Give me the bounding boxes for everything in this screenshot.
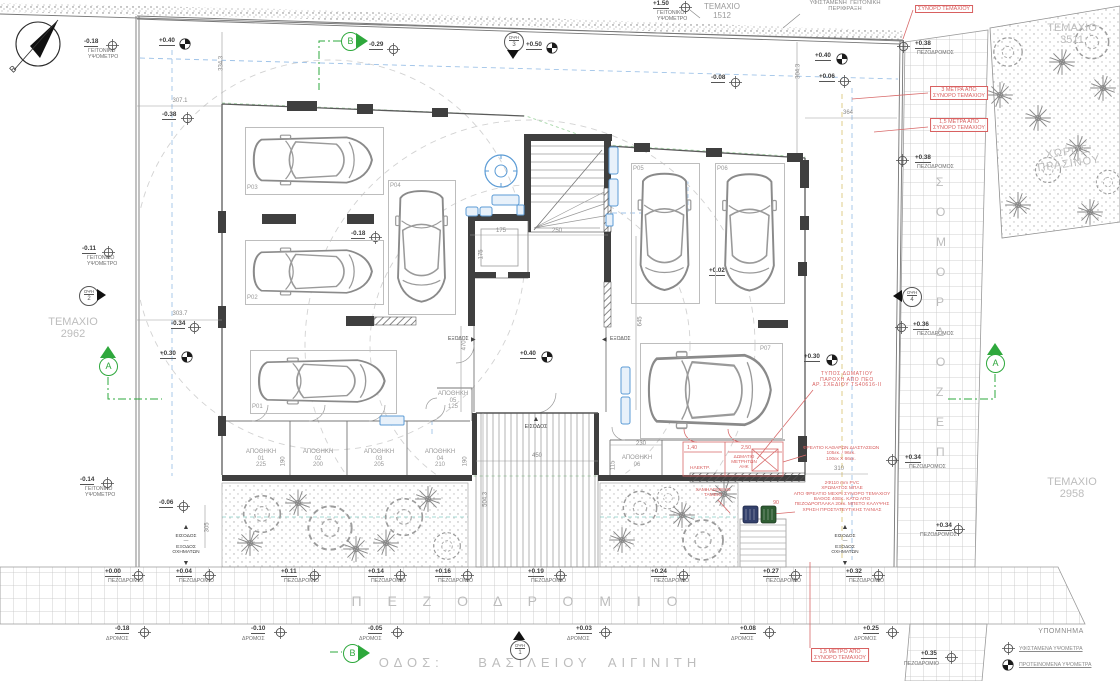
elevation-marker-existing: +0.36: [913, 322, 929, 330]
car-icon: [394, 187, 448, 306]
exit-label-right: ΕΞΟΔΟΣ: [610, 337, 631, 343]
room-label-apothiki-01: ΑΠΟΘΗΚΗ 01 225: [246, 449, 276, 469]
sidewalk-watermark: Π Ε Ζ Ο Δ Ρ Ο Μ Ι Ο: [351, 594, 688, 610]
elevation-marker-existing-sublabel: ΔΡΟΜΟΣ: [242, 637, 265, 643]
elevation-marker-existing-sublabel: ΠΕΖΟΔΡΟΜΙΟ: [531, 579, 566, 585]
dimension-label: 190: [281, 456, 288, 466]
elevation-marker-existing: -0.06: [159, 500, 173, 508]
view-marker-arrow-icon: [893, 290, 902, 302]
elevation-marker-existing: -0.18: [115, 626, 129, 634]
view-marker-number: 1: [515, 648, 524, 656]
elevation-marker-existing-sublabel: ΔΡΟΜΟΣ: [567, 637, 590, 643]
elevation-marker-existing-sublabel: ΠΕΖΟΔΡΟΜΟΣ: [909, 465, 946, 471]
car-icon: [255, 357, 390, 405]
room-label-apothiki-03: ΑΠΟΘΗΚΗ 03 205: [364, 449, 394, 469]
dimension-label: 364: [843, 110, 853, 117]
elevation-marker-existing-sublabel: ΠΕΖΟΔΡΟΜΙΟ: [904, 662, 939, 668]
elevation-marker-existing-sublabel: ΓΕΙΤΟΝΙΚΟ ΥΨΟΜΕΤΡΟ: [88, 49, 118, 61]
arrow-up-icon: ▲: [183, 524, 190, 532]
section-marker-a: A: [986, 354, 1005, 373]
elevation-marker-existing-icon: [838, 75, 851, 88]
sidewalk-strip-letter: Δ: [936, 326, 944, 339]
view-marker-1: ΟΨΗ1: [510, 640, 530, 660]
red-dimension-label: 90: [773, 501, 779, 507]
dimension-label: 450: [532, 453, 542, 460]
generated-annotations: B307.1334.3304.3364303.71752501756454705…: [0, 0, 1120, 681]
elevation-marker-proposed: +0.40: [520, 351, 536, 359]
view-marker-arrow-icon: [513, 631, 525, 640]
view-marker-4: ΟΨΗ4: [902, 287, 922, 307]
sidewalk-strip-letter: Ρ: [936, 296, 944, 309]
section-marker-arrow-icon: [100, 346, 116, 358]
parcel-label-2958: ΤΕΜΑΧΙΟ 2958: [1047, 476, 1097, 501]
elevation-marker-existing: +0.38: [915, 155, 931, 163]
vehicle-entry-exit-left: ΕΙΣΟΔΟΣ — ΕΞΟΔΟΣ ΟΧΗΜΑΤΩΝ: [172, 534, 199, 555]
entrance-arrow-icon: ▲: [533, 416, 540, 424]
elevation-marker-existing: -0.11: [82, 246, 96, 254]
elevation-marker-existing: +0.08: [740, 626, 756, 634]
elevation-marker-existing: -0.08: [711, 75, 725, 83]
sidewalk-strip-letter: Ο: [936, 206, 945, 219]
elevation-marker-existing-sublabel: ΠΕΖΟΔΡΟΜΙΟ: [438, 579, 473, 585]
car-icon: [637, 170, 692, 295]
view-marker-3: ΟΨΗ3: [504, 32, 524, 52]
red-note-pvc-duct: 2Φ110 mm PVC ΧΡΩΜΑΤΟΣ ΜΠΛΕ ΑΠΟ ΦΡΕΑΤΙΟ Μ…: [794, 481, 891, 513]
dimension-label: 230: [636, 441, 646, 448]
elevation-marker-existing-sublabel: ΓΕΙΤΟΝΙΚΟ ΥΨΟΜΕΤΡΟ: [85, 487, 115, 499]
elevation-marker-existing: -0.38: [162, 112, 176, 120]
section-marker-arrow-icon: [358, 645, 370, 661]
elevation-marker-proposed-icon: [826, 353, 839, 366]
elevation-marker-existing: -0.34: [171, 321, 185, 329]
elevation-marker-existing-icon: [895, 321, 908, 334]
dimension-label: 305: [205, 522, 212, 532]
dimension-label: 645: [638, 316, 645, 326]
room-label-apothiki-04: ΑΠΟΘΗΚΗ 04 210: [425, 449, 455, 469]
elevation-marker-existing-icon: [729, 76, 742, 89]
street-name: ΟΔΟΣ: ΒΑΣΙΛΕΙΟΥ ΑΙΓΙΝΙΤΗ: [379, 656, 701, 671]
room-label-apothiki-02: ΑΠΟΘΗΚΗ 02 200: [303, 449, 333, 469]
elevation-marker-existing-icon: [188, 321, 201, 334]
elevation-marker-existing-sublabel: ΔΡΟΜΟΣ: [854, 637, 877, 643]
red-note-1-5m-bottom: 1,5 ΜΕΤΡΟ ΑΠΟ ΣΥΝΟΡΟ ΤΕΜΑΧΙΟΥ: [811, 648, 869, 662]
compass-north-label: B: [7, 63, 18, 74]
elevation-marker-existing: -0.14: [80, 477, 94, 485]
sidewalk-strip-letter: Σ: [936, 176, 943, 189]
red-note-boundary: ΣΥΝΟΡΟ ΤΕΜΑΧΙΟΥ: [915, 5, 973, 13]
elevation-marker-existing: +0.06: [819, 74, 835, 82]
elevation-marker-existing: +0.03: [576, 626, 592, 634]
arrow-down-icon: ▼: [842, 560, 849, 568]
elevation-marker-existing-icon: [274, 626, 287, 639]
elevation-marker-existing: +0.19: [528, 569, 544, 577]
elevation-marker-existing: -0.18: [351, 231, 365, 239]
elevation-marker-proposed: +0.40: [159, 38, 175, 46]
view-marker-2: ΟΨΗ2: [79, 286, 99, 306]
view-marker-arrow-icon: [97, 289, 106, 301]
dimension-label: 304.3: [796, 64, 803, 79]
elevation-marker-proposed: +0.30: [160, 351, 176, 359]
elevation-marker-existing-icon: [387, 43, 400, 56]
elevation-marker-existing: +0.38: [915, 41, 931, 49]
elevation-marker-existing-icon: [886, 454, 899, 467]
elevation-marker-existing-sublabel: ΓΕΙΤΟΝΙΚΟ ΥΨΟΜΕΤΡΟ: [657, 11, 687, 23]
dimension-label: 303.7: [172, 311, 187, 318]
elevation-marker-existing: +0.16: [435, 569, 451, 577]
car-icon: [645, 350, 776, 430]
elevation-marker-existing: +0.00: [105, 569, 121, 577]
elevation-marker-existing: +0.34: [905, 455, 921, 463]
elevation-marker-existing: +0.24: [651, 569, 667, 577]
elevation-marker-existing: +0.25: [863, 626, 879, 634]
elevation-marker-existing-icon: [896, 154, 909, 167]
elevation-marker-proposed-icon: [181, 350, 194, 363]
red-note-room-type: ΤΥΠΟΣ ΔΩΜΑΤΙΟΥ ΠΑΡΟΧΗ ΑΠΟ ΠΕΟ ΑΡ. ΣΧΕΔΙΟ…: [812, 372, 882, 389]
elevation-marker-existing: -0.05: [368, 626, 382, 634]
arrow-down-icon: ▼: [183, 560, 190, 568]
elevation-marker-existing: -0.18: [84, 39, 98, 47]
elevation-marker-existing-icon: [138, 626, 151, 639]
elevation-marker-existing-sublabel: ΔΡΟΜΟΣ: [731, 637, 754, 643]
elevation-marker-proposed-icon: [546, 41, 559, 54]
elevation-marker-existing: +1.50: [653, 1, 669, 9]
vehicle-entry-exit-right: ΕΙΣΟΔΟΣ — ΕΞΟΔΟΣ ΟΧΗΜΑΤΩΝ: [831, 534, 858, 555]
room-label-ahk-meters: ΔΩΜΑΤΙΟ ΜΕΤΡΗΤΩΝ ΑΗΚ: [731, 454, 757, 469]
elevation-marker-proposed: +0.30: [804, 354, 820, 362]
room-label-apothiki-06: ΑΠΟΘΗΚΗ 06: [622, 455, 652, 468]
sidewalk-strip-letter: Ο: [936, 356, 945, 369]
red-note-1-5m-setback: 1,5 ΜΕΤΡΑ ΑΠΟ ΣΥΝΟΡΟ ΤΕΜΑΧΙΟΥ: [930, 118, 988, 132]
elevation-marker-proposed-icon: [836, 52, 849, 65]
view-marker-number: 2: [84, 294, 93, 302]
sidewalk-strip-letter: Ο: [936, 266, 945, 279]
sidewalk-strip-letter: Π: [936, 446, 945, 459]
elevation-marker-existing: +0.04: [176, 569, 192, 577]
section-marker-a: A: [99, 357, 118, 376]
parcel-label-3511: ΤΕΜΑΧΙΟ 3511: [1047, 22, 1097, 47]
dimension-label: 175: [496, 228, 506, 235]
elevation-marker-existing-icon: [391, 626, 404, 639]
elevation-marker-existing: -0.10: [251, 626, 265, 634]
red-note-lowered-curb: ΧΑΜΗΛΩΜΕΝΟ ΤΑΜΕΙΟ: [695, 488, 730, 499]
elevation-marker-existing-sublabel: ΠΕΖΟΔΡΟΜΟΣ: [917, 51, 954, 57]
sidewalk-strip-letter: Ε: [936, 416, 944, 429]
dimension-label: 307.1: [172, 98, 187, 105]
car-icon: [721, 170, 777, 295]
elevation-marker-proposed: +0.40: [815, 53, 831, 61]
elevation-marker-existing-sublabel: ΠΕΖΟΔΡΟΜΟΣ: [917, 165, 954, 171]
parcel-label-1512: ΤΕΜΑΧΙΟ 1512: [704, 3, 740, 21]
entrance-label: ΕΙΣΟΔΟΣ: [525, 425, 548, 431]
elevation-marker-existing: +0.32: [846, 569, 862, 577]
elevation-marker-proposed-icon: [179, 37, 192, 50]
elevation-marker-proposed-icon: [541, 350, 554, 363]
elevation-marker-existing-sublabel: ΔΡΟΜΟΣ: [106, 637, 129, 643]
view-marker-number: 3: [509, 40, 518, 48]
elevation-marker-existing-icon: [763, 626, 776, 639]
arrow-left-icon: ◀: [602, 337, 607, 344]
elevation-marker-existing-sublabel: ΔΡΟΜΟΣ: [359, 637, 382, 643]
elevation-marker-existing-sublabel: ΠΕΖΟΔΡΟΜΟΣ: [920, 533, 957, 539]
elevation-marker-existing: +0.14: [368, 569, 384, 577]
arrow-up-icon: ▲: [842, 524, 849, 532]
elevation-marker-existing-icon: [897, 40, 910, 53]
sidewalk-strip-letter: Ζ: [936, 386, 943, 399]
car-icon: [250, 247, 377, 296]
room-label-electrical: ΗΛΕΚΤΡ.: [690, 466, 710, 471]
arrow-right-icon: ▶: [471, 337, 476, 344]
existing-fence-label: ΥΦΙΣΤΑΜΕΝΗ ΓΕΙΤΟΝΙΚΗ ΠΕΡΙΦΡΑΞΗ: [809, 0, 880, 13]
elevation-marker-existing-icon: [945, 651, 958, 664]
elevation-marker-existing-sublabel: ΠΕΖΟΔΡΟΜΙΟ: [284, 579, 319, 585]
elevation-marker-existing-sublabel: ΠΕΖΟΔΡΟΜΙΟ: [849, 579, 884, 585]
red-dimension-label: 1,40: [687, 446, 697, 452]
dimension-label: 115: [611, 461, 618, 471]
parcel-label-2962: ΤΕΜΑΧΙΟ 2962: [48, 316, 98, 341]
elevation-marker-existing-sublabel: ΓΕΙΤΟΝΙΚΟ ΥΨΟΜΕΤΡΟ: [87, 256, 117, 268]
exit-label-left: ΕΞΟΔΟΣ: [448, 337, 469, 343]
sidewalk-strip-letter: Μ: [936, 236, 946, 249]
green-space-label: ΧΩΡΟΣ ΠΡΑΣΙΝΟΥ: [1035, 142, 1101, 175]
view-marker-arrow-icon: [507, 50, 519, 59]
elevation-marker-existing-icon: [181, 112, 194, 125]
view-marker-number: 4: [907, 295, 916, 303]
dimension-label: 175: [479, 249, 486, 259]
dimension-label: 250: [552, 228, 562, 235]
elevation-marker-existing: +0.34: [936, 523, 952, 531]
red-note-3m-setback: 3 ΜΕΤΡΑ ΑΠΟ ΣΥΝΟΡΟ ΤΕΜΑΧΙΟΥ: [930, 86, 988, 100]
dimension-label: 504.3: [483, 492, 490, 507]
elevation-marker-existing-sublabel: ΠΕΖΟΔΡΟΜΙΟ: [179, 579, 214, 585]
room-label-apothiki-05: ΑΠΟΘΗΚΗ 05 125: [438, 391, 468, 411]
section-marker-arrow-icon: [987, 343, 1003, 355]
site-plan-canvas: ΥΠΟΜΝΗΜΑ ΥΦΙΣΤΑΜΕΝΑ ΥΨΟΜΕΤΡΑ ΠΡΟΤΕΙΝΟΜΕΝ…: [0, 0, 1120, 681]
dimension-label: 190: [463, 456, 470, 466]
elevation-marker-existing-icon: [599, 626, 612, 639]
elevation-marker-existing: +0.27: [763, 569, 779, 577]
dimension-label: 334.3: [219, 56, 226, 71]
elevation-marker-proposed: +0.50: [526, 42, 542, 50]
elevation-marker-existing-sublabel: ΠΕΖΟΔΡΟΜΙΟ: [766, 579, 801, 585]
elevation-marker-existing-icon: [177, 500, 190, 513]
section-marker-arrow-icon: [356, 33, 368, 49]
elevation-marker-existing-sublabel: ΠΕΖΟΔΡΟΜΙΟ: [371, 579, 406, 585]
car-icon: [250, 134, 377, 186]
elevation-marker-existing-sublabel: ΠΕΖΟΔΡΟΜΙΟ: [108, 579, 143, 585]
elevation-marker-existing: +0.11: [281, 569, 297, 577]
elevation-marker-existing: +0.35: [921, 651, 937, 659]
elevation-marker-existing-sublabel: ΠΕΖΟΔΡΟΜΙΟ: [654, 579, 689, 585]
red-dimension-label: 2,50: [741, 446, 751, 452]
red-note-manhole: ΦΡΕΑΤΙΟ ΚΑΘΑΡΩΝ ΔΙΑΣΤΑΣΕΩΝ 105εκ. / 96εκ…: [803, 446, 880, 462]
elevation-marker-existing-icon: [886, 626, 899, 639]
elevation-marker-existing: -0.29: [369, 42, 383, 50]
dimension-label: 310: [834, 466, 844, 473]
